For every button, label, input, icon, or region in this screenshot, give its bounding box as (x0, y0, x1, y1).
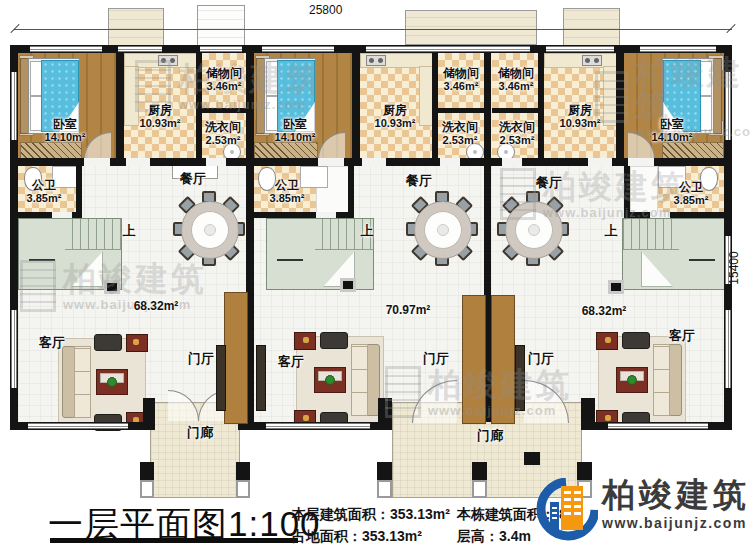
wall (378, 398, 392, 430)
room-name: 卧室 (283, 117, 307, 131)
sofa-set-3 (596, 330, 688, 428)
wall (202, 108, 246, 113)
room-label-bath-1: 公卫3.85m² (27, 178, 62, 205)
room-label-foyer-3: 门厅 (528, 351, 554, 366)
window (608, 423, 708, 429)
room-label-bedroom-3: 卧室14.10m² (652, 117, 693, 144)
bath-vanity-area (630, 166, 658, 214)
window (640, 46, 716, 52)
room-area: 3.85m² (674, 194, 709, 207)
unit-area-label-2: 70.97m² (386, 303, 431, 317)
wall (438, 108, 484, 113)
door-opening (84, 158, 110, 166)
room-area: 14.10m² (275, 131, 316, 144)
stair-arrow (277, 259, 303, 261)
plant-icon (325, 375, 335, 385)
side-table (294, 332, 316, 350)
room-name: 洗衣间 (205, 120, 241, 134)
window (28, 423, 128, 429)
stat-floor-height: 层高：3.4m (457, 528, 531, 546)
window (118, 46, 162, 52)
door-opening (588, 158, 612, 166)
table-center (437, 224, 449, 236)
window (546, 46, 614, 52)
window (725, 72, 731, 140)
wall (254, 212, 354, 218)
room-name: 储物间 (498, 66, 534, 80)
room-name: 卧室 (660, 117, 684, 131)
window (11, 310, 17, 388)
room-label-porch-2: 门廊 (477, 428, 503, 443)
stove-icon (158, 55, 178, 66)
table-center (528, 224, 540, 236)
stat-label: 占地面积： (292, 528, 362, 544)
porch-pillar-base (377, 480, 392, 498)
room-label-kitchen-1: 厨房10.93m² (140, 103, 181, 130)
coffee-table (96, 369, 128, 395)
company-logo: 柏竣建筑 www.baijunjz.com (536, 478, 750, 546)
plant-icon (107, 377, 117, 387)
bed-pillows (700, 61, 712, 131)
door-opening (316, 212, 336, 218)
stairs-up-label-3: 上 (605, 223, 618, 238)
room-name: 储物间 (443, 66, 479, 80)
stove-icon (582, 55, 602, 66)
plant-icon (627, 375, 637, 385)
room-area: 14.10m² (652, 131, 693, 144)
porch-pillar (140, 462, 154, 480)
coffee-table (616, 367, 648, 393)
room-label-bedroom-2: 卧室14.10m² (275, 117, 316, 144)
unit-area-label-3: 68.32m² (582, 304, 627, 318)
window (11, 72, 17, 140)
wall (116, 53, 124, 164)
window (410, 46, 530, 52)
room-name: 厨房 (383, 103, 407, 117)
room-name: 储物间 (206, 66, 242, 80)
room-area: 2.53m² (499, 134, 535, 147)
room-name: 公卫 (679, 180, 703, 194)
sofa-cushions (74, 346, 91, 418)
dimension-line-top (14, 29, 732, 30)
room-label-porch-1: 门廊 (187, 425, 213, 440)
column-marker (104, 280, 120, 294)
side-table (596, 332, 618, 350)
dining-table-2 (404, 191, 480, 267)
table-center (204, 224, 216, 236)
room-name: 卧室 (53, 117, 77, 131)
tv-feature-wall-3 (491, 295, 515, 424)
sofa-set-2 (294, 330, 386, 428)
room-label-foyer-1: 门厅 (188, 351, 214, 366)
tv-feature-wall-2 (462, 295, 486, 424)
door-opening (440, 158, 460, 166)
wall (624, 212, 724, 218)
window (266, 423, 370, 429)
bay-window (197, 5, 245, 47)
room-area: 10.93m² (140, 117, 181, 130)
stove-icon (366, 55, 386, 66)
stair-arrow (689, 259, 715, 261)
room-area: 10.93m² (560, 117, 601, 130)
company-url: www.baijunjz.com (602, 515, 750, 531)
bay-window (563, 8, 620, 47)
room-name: 公卫 (275, 178, 299, 192)
stair-treads (623, 219, 679, 250)
stat-label: 本层建筑面积： (292, 506, 390, 522)
window (30, 46, 102, 52)
room-label-laundry-2: 洗衣间2.53m² (442, 120, 478, 147)
door-opening (126, 158, 150, 166)
porch-pillar (236, 462, 250, 480)
window (200, 46, 242, 52)
armchair (320, 332, 348, 349)
room-label-dining-1: 餐厅 (180, 171, 206, 186)
stairs-up-label-2: 上 (361, 223, 374, 238)
wall (538, 53, 544, 164)
porch-pillar-base (140, 480, 154, 498)
door-opening (52, 212, 72, 218)
door-opening (650, 212, 670, 218)
door-opening (628, 158, 654, 166)
stair-winder (71, 251, 103, 287)
stat-floor-area: 本层建筑面积：353.13m² (292, 506, 450, 524)
staircase-3 (622, 218, 726, 290)
staircase-2 (266, 218, 374, 290)
stair-treads (65, 219, 121, 250)
door-opening (362, 158, 386, 166)
side-table (126, 334, 148, 352)
room-label-kitchen-3: 厨房10.93m² (560, 103, 601, 130)
company-name: 柏竣建筑 (602, 478, 750, 513)
dimension-top-label: 25800 (309, 3, 342, 17)
room-name: 洗衣间 (442, 120, 478, 134)
wall (348, 166, 354, 218)
unit-area-label-1: 68.32m² (134, 299, 179, 313)
room-label-dining-2: 餐厅 (406, 173, 432, 188)
bay-window (405, 10, 537, 45)
armchair (622, 332, 650, 349)
room-name: 厨房 (568, 103, 592, 117)
room-label-bedroom-1: 卧室14.10m² (45, 117, 86, 144)
dimension-right-label: 15400 (727, 238, 741, 298)
sofa-cushions (351, 344, 368, 416)
sofa-set-1 (56, 332, 148, 430)
room-area: 3.85m² (270, 192, 305, 205)
room-label-bath-2: 公卫3.85m² (270, 178, 305, 205)
porch-pillar-base (472, 480, 487, 498)
sofa-back (668, 344, 682, 416)
coffee-table (314, 367, 346, 393)
room-name: 厨房 (148, 103, 172, 117)
window (725, 310, 731, 388)
door-opening (206, 158, 226, 166)
stat-value: 3.4m (499, 528, 531, 544)
room-label-living-1: 客厅 (39, 335, 65, 350)
door-opening (318, 158, 344, 166)
room-label-laundry-1: 洗衣间2.53m² (205, 120, 241, 147)
wall (492, 108, 538, 113)
room-area: 3.46m² (443, 80, 479, 93)
room-area: 14.10m² (45, 131, 86, 144)
wall (18, 212, 82, 218)
kitchen-counter (124, 66, 139, 126)
title-underline (50, 538, 298, 543)
porch-pillar (524, 452, 540, 465)
wall (581, 398, 595, 430)
wall (143, 398, 155, 430)
column-marker (340, 278, 356, 292)
room-name: 公卫 (32, 178, 56, 192)
tv-cabinet (256, 345, 266, 411)
wall (76, 166, 82, 218)
dining-table-1 (171, 191, 247, 267)
porch-pillar (377, 462, 392, 480)
stat-label: 层高： (457, 528, 499, 544)
stat-footprint: 占地面积：353.13m² (292, 528, 422, 546)
room-label-storage-2: 储物间3.46m² (443, 66, 479, 93)
room-label-dining-3: 餐厅 (536, 175, 562, 190)
column-marker (608, 280, 624, 294)
room-area: 3.46m² (206, 80, 242, 93)
wall (352, 53, 360, 164)
sofa-cushions (653, 344, 670, 416)
armchair (94, 334, 122, 351)
tv-feature-wall-1 (224, 292, 248, 424)
stair-winder (641, 251, 673, 287)
room-area: 10.93m² (375, 117, 416, 130)
stairs-up-label-1: 上 (123, 223, 136, 238)
room-label-bath-3: 公卫3.85m² (674, 180, 709, 207)
room-area: 2.53m² (205, 134, 241, 147)
tv-cabinet (216, 345, 226, 411)
stat-value: 353.13m² (362, 528, 422, 544)
porch-pillar-base (236, 480, 250, 498)
room-label-storage-3: 储物间3.46m² (498, 66, 534, 93)
room-label-living-2: 客厅 (278, 354, 304, 369)
porch-pillar (472, 462, 487, 480)
room-area: 3.85m² (27, 192, 62, 205)
window (262, 46, 334, 52)
wall (616, 53, 624, 164)
dining-table-3 (495, 191, 571, 267)
room-label-living-3: 客厅 (669, 328, 695, 343)
wall (624, 166, 630, 218)
floor-plan: 25800 15400 (0, 0, 750, 553)
tv-cabinet (515, 345, 525, 411)
bay-window (108, 8, 164, 47)
stair-arrow (29, 259, 55, 261)
door-opening (502, 158, 522, 166)
room-label-kitchen-2: 厨房10.93m² (375, 103, 416, 130)
company-logo-icon (536, 478, 598, 546)
room-area: 2.53m² (442, 134, 478, 147)
stat-value: 353.13m² (390, 506, 450, 522)
room-name: 洗衣间 (499, 120, 535, 134)
room-label-laundry-3: 洗衣间2.53m² (499, 120, 535, 147)
room-label-foyer-2: 门厅 (423, 351, 449, 366)
room-area: 3.46m² (498, 80, 534, 93)
room-label-storage-1: 储物间3.46m² (206, 66, 242, 93)
